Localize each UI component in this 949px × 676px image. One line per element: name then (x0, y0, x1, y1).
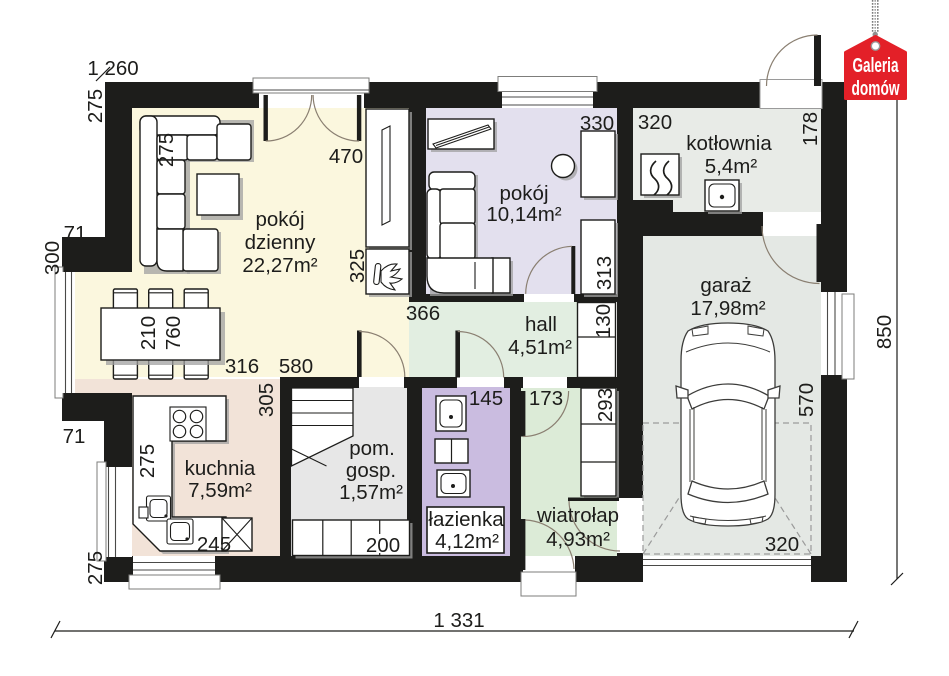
svg-text:kotłownia: kotłownia (686, 132, 772, 155)
svg-text:245: 245 (197, 533, 231, 556)
svg-text:71: 71 (63, 425, 86, 448)
svg-text:7,59m²: 7,59m² (188, 479, 252, 502)
svg-text:293: 293 (594, 388, 617, 422)
svg-text:hall: hall (525, 313, 557, 336)
svg-text:210: 210 (137, 316, 160, 350)
svg-text:130: 130 (592, 304, 615, 338)
svg-text:1,57m²: 1,57m² (339, 481, 403, 504)
svg-text:325: 325 (346, 249, 369, 283)
svg-text:580: 580 (279, 355, 313, 378)
svg-text:275: 275 (155, 133, 178, 167)
svg-text:4,51m²: 4,51m² (508, 336, 572, 359)
svg-text:173: 173 (529, 387, 563, 410)
svg-text:760: 760 (162, 316, 185, 350)
svg-text:22,27m²: 22,27m² (242, 254, 317, 277)
svg-text:320: 320 (638, 111, 672, 134)
svg-text:pokój: pokój (255, 208, 304, 231)
svg-text:łazienka: łazienka (428, 508, 504, 531)
svg-text:1 260: 1 260 (87, 57, 138, 80)
svg-text:71: 71 (64, 222, 87, 245)
svg-text:gosp.: gosp. (346, 459, 396, 482)
svg-text:5,4m²: 5,4m² (705, 155, 758, 178)
svg-text:305: 305 (255, 383, 278, 417)
svg-text:Galeria: Galeria (853, 55, 900, 77)
svg-text:570: 570 (795, 383, 818, 417)
svg-text:wiatrołap: wiatrołap (536, 504, 619, 527)
svg-text:domów: domów (852, 78, 900, 100)
svg-text:178: 178 (799, 112, 822, 146)
svg-text:kuchnia: kuchnia (185, 457, 256, 480)
svg-text:dzienny: dzienny (245, 231, 316, 254)
svg-text:300: 300 (41, 241, 64, 275)
svg-text:200: 200 (366, 534, 400, 557)
svg-text:pom.: pom. (349, 437, 395, 460)
svg-text:10,14m²: 10,14m² (486, 203, 561, 226)
svg-text:1 331: 1 331 (433, 609, 484, 632)
svg-text:145: 145 (469, 387, 503, 410)
svg-text:320: 320 (765, 533, 799, 556)
svg-text:275: 275 (84, 551, 107, 585)
svg-text:garaż: garaż (700, 274, 751, 297)
svg-text:850: 850 (873, 315, 896, 349)
svg-text:316: 316 (225, 355, 259, 378)
svg-text:275: 275 (84, 89, 107, 123)
svg-text:470: 470 (329, 145, 363, 168)
svg-text:330: 330 (580, 112, 614, 135)
svg-text:313: 313 (593, 256, 616, 290)
svg-text:275: 275 (136, 444, 159, 478)
svg-text:17,98m²: 17,98m² (690, 297, 765, 320)
svg-text:pokój: pokój (499, 182, 548, 205)
svg-text:4,93m²: 4,93m² (546, 528, 610, 551)
svg-text:366: 366 (406, 302, 440, 325)
svg-text:4,12m²: 4,12m² (435, 530, 499, 553)
